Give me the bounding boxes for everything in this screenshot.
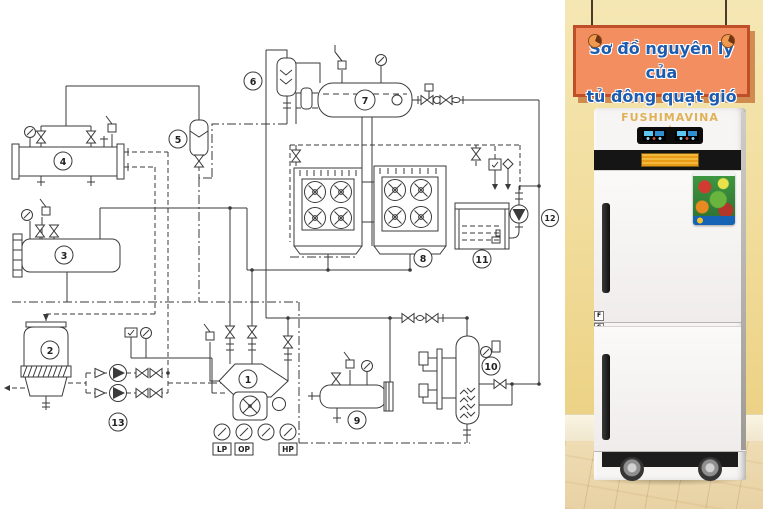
oil-drum-9: 9 — [312, 352, 393, 429]
temperature-display-left — [642, 130, 666, 141]
arrow-drain — [4, 385, 10, 391]
pin-icon-left — [588, 34, 602, 48]
svg-text:LP: LP — [217, 445, 228, 454]
water-tank-11: 11 — [455, 193, 528, 268]
oil-separator-6: 6 — [244, 58, 296, 108]
pressure-gauges: LP OP HP — [213, 424, 297, 455]
caster-wheel-left — [620, 457, 644, 481]
screenshot: 4 5 3 2 — [0, 0, 763, 509]
cooling-tower-2: 2 — [21, 322, 71, 407]
svg-text:2: 2 — [47, 346, 54, 357]
arrow-into-tower — [43, 314, 49, 321]
pin-icon-right — [721, 34, 735, 48]
arrow-sensor-1 — [492, 184, 498, 190]
svg-text:6: 6 — [250, 77, 257, 88]
svg-text:13: 13 — [111, 418, 124, 429]
svg-text:11: 11 — [475, 255, 488, 266]
signboard: Sơ đồ nguyên lý của tủ đông quạt gió — [573, 25, 750, 97]
sign-title: Sơ đồ nguyên lý của tủ đông quạt gió — [576, 37, 747, 109]
front-band — [594, 150, 746, 170]
food-sticker — [693, 172, 735, 225]
spec-label — [641, 153, 699, 167]
svg-text:OP: OP — [238, 445, 250, 454]
temperature-display-right — [675, 130, 699, 141]
intercooler-10: 10 — [402, 314, 506, 436]
room-control-box — [489, 159, 513, 170]
svg-text:5: 5 — [175, 135, 182, 146]
caster-wheel-right — [698, 457, 722, 481]
svg-text:1: 1 — [245, 375, 252, 386]
door-label-f: F — [594, 311, 604, 321]
svg-text:3: 3 — [61, 251, 68, 262]
svg-text:7: 7 — [362, 96, 369, 107]
svg-text:HP: HP — [282, 445, 294, 454]
evaporator-units-8: 8 — [292, 148, 481, 267]
freezer-door-lower — [594, 326, 746, 452]
control-panel — [637, 127, 703, 144]
sign-title-line2: tủ đông quạt gió — [576, 85, 747, 109]
svg-text:4: 4 — [60, 157, 67, 168]
svg-text:9: 9 — [354, 416, 361, 427]
surge-drum-7: 7 — [296, 53, 463, 117]
receiver-3: 3 — [13, 199, 120, 277]
svg-text:10: 10 — [484, 362, 498, 373]
arrow-sensor-2 — [505, 184, 511, 190]
component-label-12: 12 — [542, 210, 559, 227]
refrigeration-schematic: 4 5 3 2 — [0, 0, 565, 509]
freezer-product: FUSHIMAVINA ★★★★★★★ F C — [594, 108, 746, 480]
compressor-1: 1 — [204, 324, 293, 420]
svg-text:8: 8 — [420, 254, 427, 265]
water-pumps-13: 13 — [95, 328, 162, 432]
door-handle-upper — [602, 203, 610, 293]
freezer-side-edge — [741, 112, 746, 450]
door-handle-lower — [602, 354, 610, 440]
filter-drier-5: 5 — [169, 120, 208, 167]
freezer-door-upper — [594, 170, 746, 323]
product-panel: Sơ đồ nguyên lý của tủ đông quạt gió FUS… — [565, 0, 763, 509]
svg-text:12: 12 — [544, 214, 555, 223]
